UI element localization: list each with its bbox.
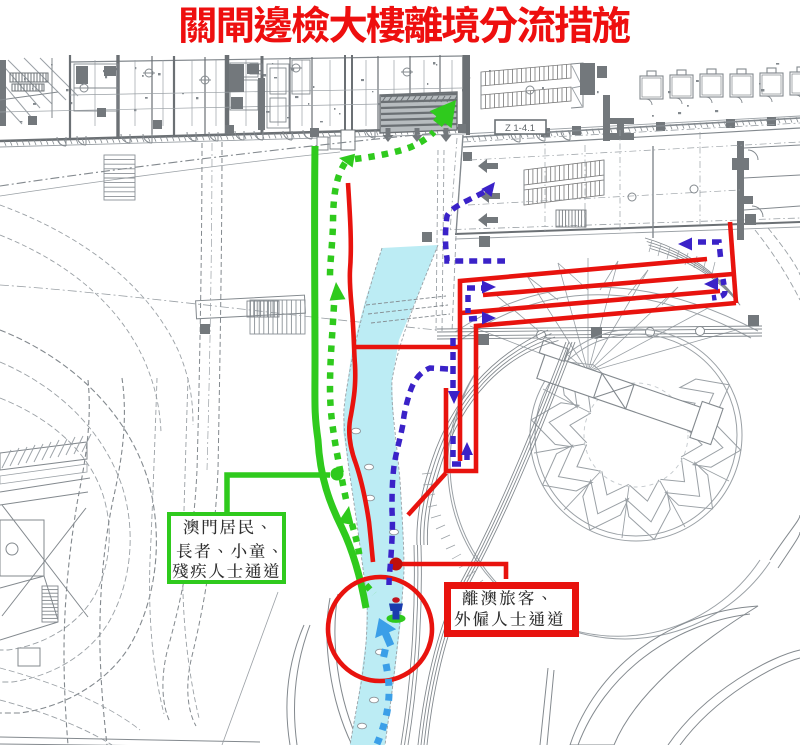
- svg-text:Z 1-4.1: Z 1-4.1: [505, 123, 535, 134]
